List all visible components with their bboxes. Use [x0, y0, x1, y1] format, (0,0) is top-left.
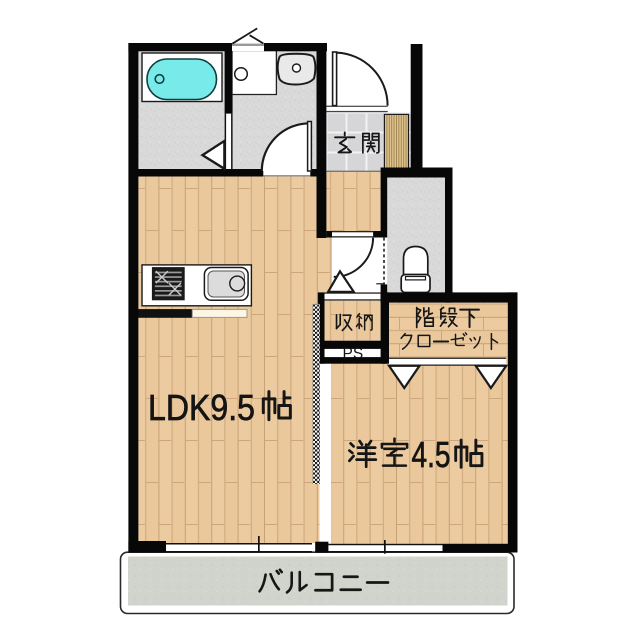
svg-text:PS: PS — [343, 346, 364, 363]
svg-text:4.5: 4.5 — [412, 434, 451, 475]
svg-text:LDK9.5: LDK9.5 — [148, 387, 255, 428]
